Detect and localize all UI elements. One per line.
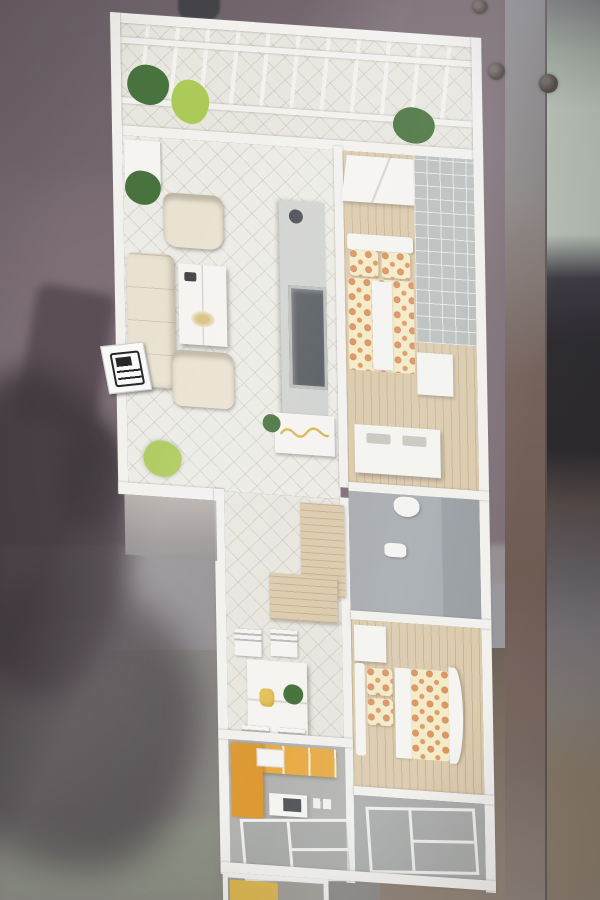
dining-chair-top-left [234, 628, 261, 657]
screw-right [539, 74, 558, 93]
bottom-balcony-mat [230, 879, 278, 900]
bedroom1-canopy [341, 155, 420, 206]
balcony-grid-divider-h [410, 839, 474, 843]
kitchen-sink [256, 748, 284, 768]
bed1-pillow-left [349, 249, 378, 277]
balcony-grid-outer [365, 807, 479, 875]
tv-screen [288, 285, 328, 390]
step-face [124, 494, 217, 561]
glass-edge-line [545, 0, 547, 900]
hall-cabinet [269, 572, 338, 623]
appliance-screen [283, 798, 301, 812]
speaker-icon [289, 209, 303, 224]
bed2-headboard [355, 663, 367, 756]
bed1-runner [372, 281, 393, 371]
kitchen-appliance [269, 793, 307, 818]
bedroom1-nightstand [417, 352, 454, 397]
glass-edge-bands [547, 0, 600, 900]
glass-frame-post [505, 0, 547, 900]
bedroom1-window-lattice [413, 156, 476, 347]
kitchen-small-items [313, 798, 331, 809]
phone-sign-glyph-icon [109, 350, 145, 387]
apartment-model [110, 12, 496, 893]
entry-shelf [274, 412, 335, 456]
shower-zone [441, 497, 481, 620]
squiggle-art [279, 423, 331, 443]
dresser-slot-right [402, 435, 426, 447]
remote-on-table [184, 272, 196, 282]
bed2-duvet [410, 669, 449, 762]
photograph-of-apartment-model [0, 0, 600, 900]
bedroom2-nightstand [354, 625, 387, 663]
bedroom1-dresser [354, 424, 441, 478]
bed1-pillow-right [381, 252, 410, 280]
bed2-runner [394, 667, 412, 758]
dining-chair-top-right [270, 629, 297, 658]
bed2-pillow-top [367, 667, 393, 696]
screw-mid [488, 63, 505, 80]
laundry-grid-divider-h [289, 848, 349, 851]
bed2-pillow-bottom [367, 698, 393, 727]
armchair-top [163, 192, 224, 250]
bathroom-sink [384, 542, 406, 558]
screw-top [472, 0, 488, 14]
table-item-yellow [259, 688, 274, 707]
armchair-bottom [172, 349, 235, 410]
dresser-slot-left [366, 433, 390, 445]
phone-sign [100, 342, 152, 395]
